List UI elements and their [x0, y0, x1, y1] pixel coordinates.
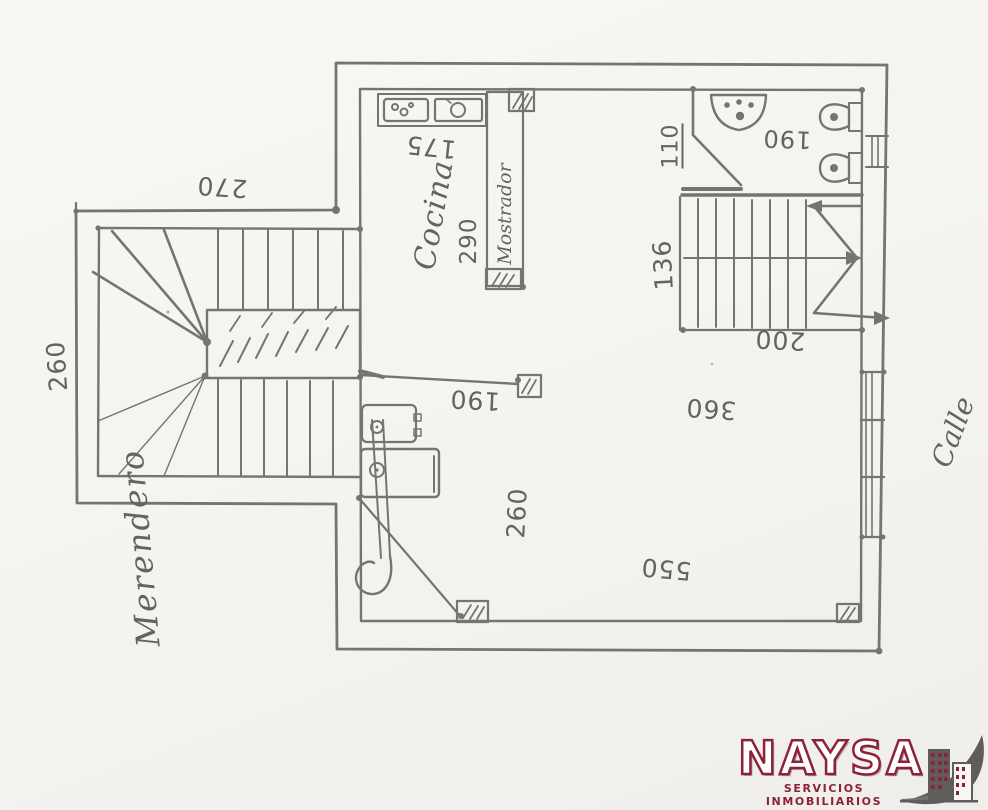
- dimension-annex-depth: 260: [41, 340, 73, 393]
- partition-wall: [360, 371, 518, 384]
- door-swing-line: [359, 498, 460, 616]
- logo-tagline: SERVICIOS INMOBILIARIOS: [740, 782, 908, 810]
- pencil-marks: [73, 86, 882, 654]
- dimension-stair-run: 200: [754, 324, 806, 356]
- annex-stairs: [93, 229, 360, 477]
- inner-walls: [98, 89, 862, 621]
- dimension-kitchen-width: 175: [404, 130, 457, 164]
- dimension-room-mid-depth: 260: [501, 487, 533, 539]
- toilet: [820, 153, 862, 183]
- dimension-bath-width: 190: [762, 124, 812, 154]
- logo-wordmark: NAYSA: [738, 735, 925, 781]
- dimension-stair-width: 136: [647, 239, 679, 291]
- dimension-counter-length: 290: [456, 218, 482, 265]
- main-stairs: [680, 195, 890, 330]
- dimension-annex-width: 270: [196, 171, 249, 203]
- angled-wall: [693, 135, 741, 185]
- appliances: [356, 405, 460, 616]
- dimension-hall-width: 190: [449, 384, 501, 416]
- dimension-bath-entry: 110: [659, 124, 684, 169]
- scanned-floorplan-page: 270 260 Merendero Cocina 175 290 Mostrad…: [0, 0, 988, 810]
- counter-label-mostrador: Mostrador: [494, 163, 516, 264]
- buildings-icon: [898, 725, 988, 809]
- dimension-room-width: 360: [685, 393, 738, 425]
- naysa-logo: NAYSA SERVICIOS INMOBILIARIOS: [700, 735, 985, 807]
- dimension-room-length: 550: [639, 552, 692, 585]
- toilet: [820, 103, 862, 131]
